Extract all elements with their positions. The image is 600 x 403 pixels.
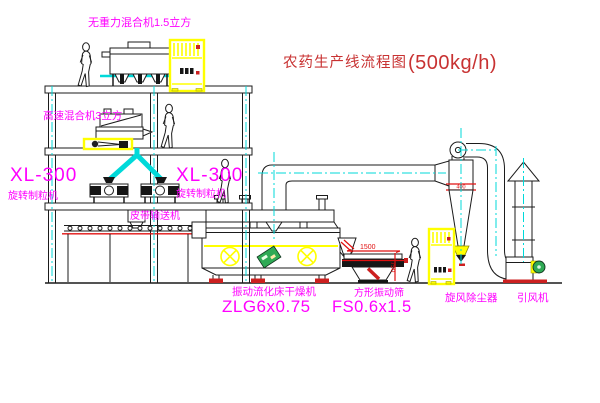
granulator-right — [141, 184, 179, 203]
conveyor-rollers — [68, 226, 192, 230]
label-granulator-left-model: XL-300 — [10, 165, 77, 186]
person-figure-ground — [407, 238, 420, 282]
label-granulator-mid-name: 旋转制粒机 — [176, 187, 226, 200]
dim-sieve-height: 750 — [389, 262, 396, 273]
cad-flow-diagram-page: 无重力混合机1.5立方 农药生产线流程图 (500kg/h) 高速混合机3立方 … — [0, 0, 600, 403]
control-cabinet-1 — [170, 40, 204, 91]
control-cabinet-2 — [429, 229, 454, 284]
induced-draft-fan — [503, 257, 547, 283]
dim-cyclone-mark: 400 — [456, 185, 465, 191]
diagram-canvas: 无重力混合机1.5立方 农药生产线流程图 (500kg/h) 高速混合机3立方 … — [0, 0, 600, 403]
label-dryer-model: ZLG6x0.75 — [222, 297, 311, 316]
page-title: 农药生产线流程图 — [283, 54, 407, 71]
roof-mixer — [100, 42, 178, 86]
label-sieve-model: FS0.6x1.5 — [332, 298, 412, 316]
label-top-mixer: 无重力混合机1.5立方 — [88, 15, 191, 29]
person-figure-floor2 — [161, 104, 174, 148]
dim-sieve-length: 1500 — [360, 244, 376, 251]
label-floor2-mixer: 高速混合机3立方 — [43, 109, 122, 122]
mixer-motor-box — [84, 139, 132, 149]
label-fan: 引风机 — [517, 291, 549, 304]
label-belt-conveyor: 皮带输送机 — [130, 209, 180, 222]
person-figure-roof — [78, 43, 91, 87]
label-cyclone: 旋风除尘器 — [445, 291, 498, 304]
roof-mixer-hoppers — [115, 74, 165, 84]
label-granulator-mid-model: XL-300 — [176, 165, 243, 186]
dryer-legs — [209, 275, 329, 283]
granulator-left — [90, 184, 128, 203]
dryer-feed-inlet — [192, 222, 206, 238]
page-title-capacity: (500kg/h) — [408, 52, 497, 74]
label-granulator-left-name: 旋转制粒机 — [8, 189, 58, 202]
